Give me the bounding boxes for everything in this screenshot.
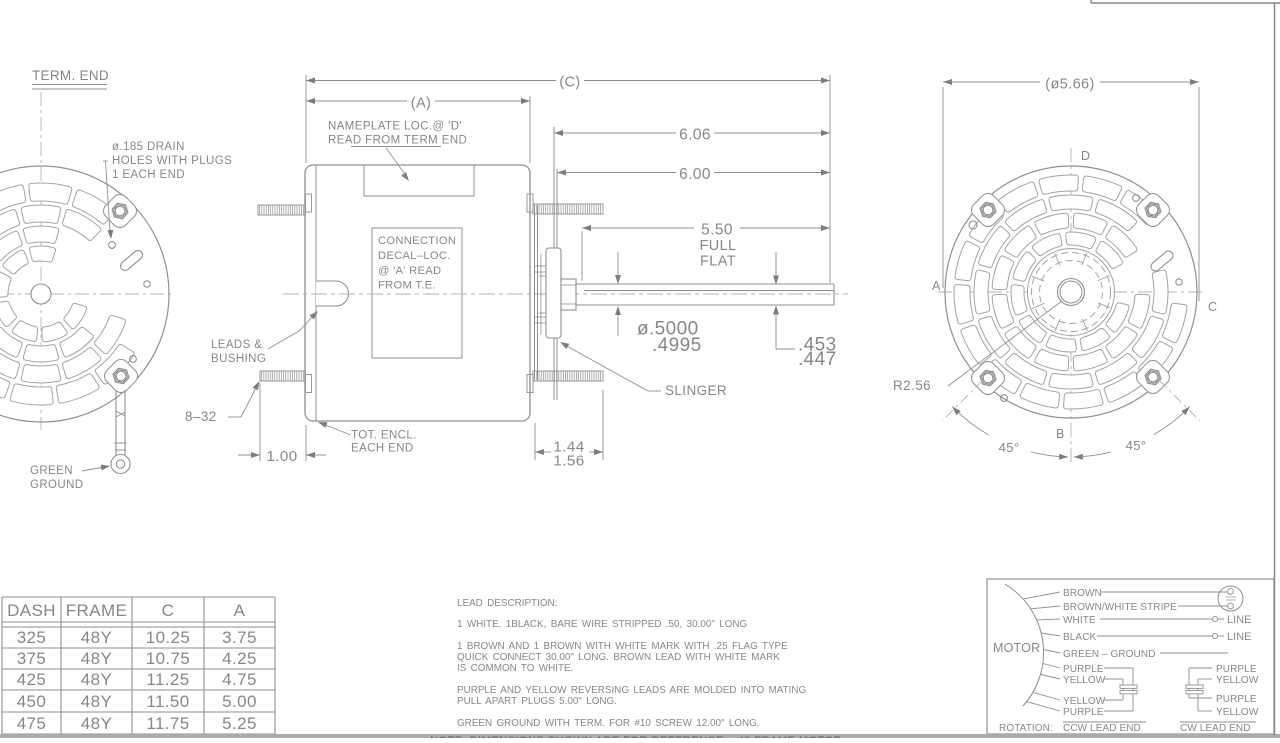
svg-text:BROWN: BROWN [1063, 588, 1102, 599]
svg-text:YELLOW: YELLOW [1063, 696, 1106, 707]
svg-text:.447: .447 [798, 349, 837, 370]
svg-text:1 BROWN AND 1 BROWN WITH WHITE: 1 BROWN AND 1 BROWN WITH WHITE MARK WITH… [457, 641, 788, 652]
svg-text:EACH END: EACH END [351, 443, 414, 455]
svg-text:FLAT: FLAT [700, 254, 736, 270]
svg-text:PURPLE AND YELLOW REVERSING LE: PURPLE AND YELLOW REVERSING LEADS ARE MO… [457, 685, 806, 696]
svg-text:GROUND: GROUND [30, 479, 84, 491]
svg-text:YELLOW: YELLOW [1216, 675, 1259, 686]
svg-text:LINE: LINE [1227, 614, 1251, 626]
svg-text:MOTOR: MOTOR [993, 641, 1040, 655]
svg-text:HOLES WITH PLUGS: HOLES WITH PLUGS [112, 155, 232, 167]
svg-text:48Y: 48Y [81, 714, 112, 733]
svg-text:PURPLE: PURPLE [1063, 664, 1104, 675]
svg-text:11.25: 11.25 [146, 670, 189, 689]
svg-text:A: A [234, 601, 246, 620]
svg-text:GREEN GROUND WITH TERM. FOR #1: GREEN GROUND WITH TERM. FOR #10 SCREW 12… [457, 718, 760, 729]
svg-text:CONNECTION: CONNECTION [378, 235, 456, 247]
svg-text:425: 425 [17, 670, 47, 689]
svg-text:DECAL–LOC.: DECAL–LOC. [378, 250, 451, 262]
svg-text:PURPLE: PURPLE [1063, 707, 1104, 718]
svg-text:BLACK: BLACK [1063, 632, 1097, 643]
svg-text:A: A [932, 279, 941, 293]
svg-text:325: 325 [17, 628, 47, 647]
svg-text:GREEN – GROUND: GREEN – GROUND [1063, 649, 1156, 660]
svg-text:IS COMMON TO WHITE.: IS COMMON TO WHITE. [457, 663, 573, 674]
svg-text:ROTATION:: ROTATION: [999, 723, 1053, 734]
svg-text:FROM T.E.: FROM T.E. [378, 280, 436, 292]
svg-text:45°: 45° [1126, 438, 1147, 453]
svg-text:LEAD DESCRIPTION:: LEAD DESCRIPTION: [457, 598, 557, 609]
svg-text:6.06: 6.06 [679, 127, 711, 144]
svg-text:PURPLE: PURPLE [1216, 664, 1257, 675]
svg-text:CW LEAD END: CW LEAD END [1180, 723, 1251, 734]
svg-text:11.50: 11.50 [146, 692, 189, 711]
svg-text:8–32: 8–32 [185, 409, 217, 424]
svg-text:10.75: 10.75 [146, 649, 191, 668]
svg-text:4.75: 4.75 [222, 670, 257, 689]
svg-text:(ø5.66): (ø5.66) [1045, 77, 1095, 93]
svg-text:1.00: 1.00 [266, 448, 297, 465]
svg-text:D: D [1081, 149, 1090, 163]
svg-text:475: 475 [17, 714, 47, 733]
svg-text:3.75: 3.75 [222, 628, 257, 647]
svg-text:WHITE: WHITE [1063, 615, 1096, 626]
svg-text:5.00: 5.00 [222, 692, 257, 711]
svg-text:FRAME: FRAME [66, 601, 128, 620]
svg-text:R2.56: R2.56 [893, 378, 931, 393]
svg-text:LINE: LINE [1227, 631, 1251, 643]
svg-text:YELLOW: YELLOW [1063, 675, 1106, 686]
svg-text:TOT. ENCL.: TOT. ENCL. [351, 430, 417, 442]
svg-text:(A): (A) [411, 96, 432, 112]
svg-text:48Y: 48Y [81, 670, 112, 689]
svg-text:48Y: 48Y [81, 692, 112, 711]
svg-text:375: 375 [17, 649, 47, 668]
svg-text:(C): (C) [559, 75, 580, 91]
svg-text:C: C [162, 601, 175, 620]
svg-text:5.25: 5.25 [222, 714, 257, 733]
svg-text:PULL APART PLUGS 5.00" LONG.: PULL APART PLUGS 5.00" LONG. [457, 696, 617, 707]
svg-text:SLINGER: SLINGER [665, 383, 727, 398]
svg-text:@ 'A' READ: @ 'A' READ [378, 265, 441, 277]
svg-text:CCW LEAD END: CCW LEAD END [1063, 723, 1141, 734]
svg-text:1 WHITE, 1BLACK, BARE WIRE STR: 1 WHITE, 1BLACK, BARE WIRE STRIPPED .50,… [457, 619, 747, 630]
svg-text:READ FROM TERM END: READ FROM TERM END [328, 135, 467, 147]
svg-text:BROWN/WHITE STRIPE: BROWN/WHITE STRIPE [1063, 602, 1177, 613]
svg-text:48Y: 48Y [81, 649, 112, 668]
svg-text:1.56: 1.56 [553, 453, 584, 470]
svg-text:11.75: 11.75 [146, 714, 189, 733]
svg-text:C: C [1208, 300, 1217, 314]
svg-text:LEADS &: LEADS & [211, 339, 262, 351]
svg-text:4.25: 4.25 [222, 649, 257, 668]
svg-text:DASH: DASH [7, 601, 56, 620]
svg-text:GREEN: GREEN [30, 465, 73, 477]
svg-text:PURPLE: PURPLE [1216, 694, 1257, 705]
svg-text:NAMEPLATE LOC.@ 'D': NAMEPLATE LOC.@ 'D' [328, 121, 462, 133]
svg-text:1 EACH END: 1 EACH END [112, 169, 185, 181]
svg-text:10.25: 10.25 [146, 628, 191, 647]
svg-text:B: B [1056, 427, 1065, 441]
svg-text:48Y: 48Y [81, 628, 112, 647]
svg-text:QUICK CONNECT 30.00" LONG. BR: QUICK CONNECT 30.00" LONG. BROWN LEAD WI… [457, 652, 780, 663]
svg-text:45°: 45° [999, 440, 1020, 455]
svg-text:TERM. END: TERM. END [32, 68, 109, 83]
svg-text:ø.185 DRAIN: ø.185 DRAIN [112, 141, 185, 153]
svg-text:YELLOW: YELLOW [1216, 707, 1259, 718]
svg-text:5.50: 5.50 [701, 222, 733, 239]
svg-text:6.00: 6.00 [679, 166, 711, 183]
svg-text:BUSHING: BUSHING [211, 353, 266, 365]
svg-text:FULL: FULL [699, 238, 736, 254]
svg-text:450: 450 [17, 692, 47, 711]
svg-text:.4995: .4995 [652, 335, 702, 356]
